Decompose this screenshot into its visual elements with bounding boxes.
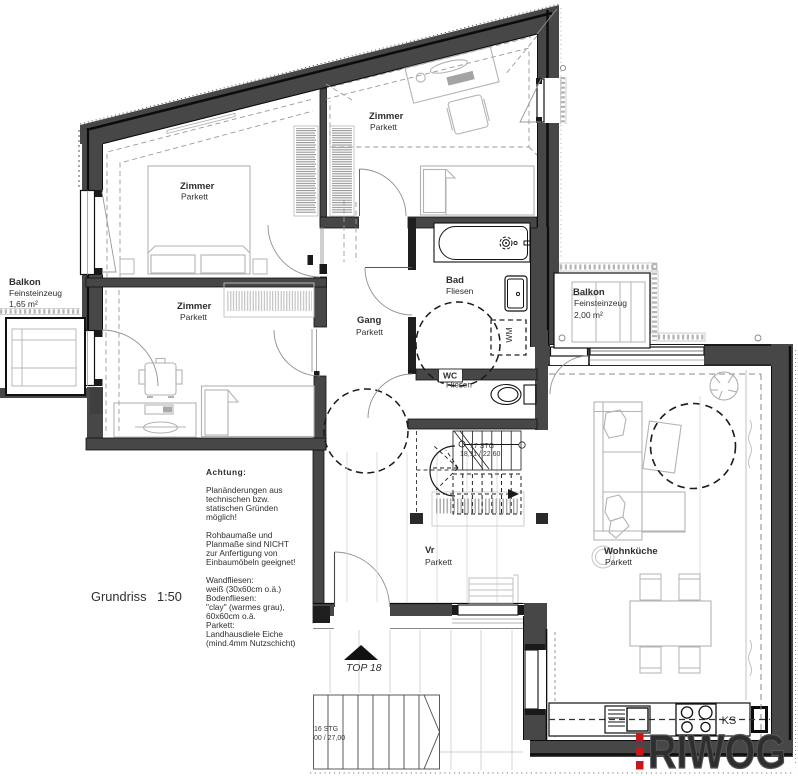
svg-text:Parkett: Parkett xyxy=(605,557,633,567)
svg-text:(mind.4mm Nutzschicht): (mind.4mm Nutzschicht) xyxy=(206,638,296,648)
svg-text:möglich!: möglich! xyxy=(206,512,237,522)
svg-text:Zimmer: Zimmer xyxy=(369,111,404,122)
svg-text:Fliesen: Fliesen xyxy=(446,286,474,296)
svg-text:2,00 m²: 2,00 m² xyxy=(574,310,603,320)
svg-text:Parkett: Parkett xyxy=(356,327,384,337)
svg-text:Vr: Vr xyxy=(425,545,435,556)
svg-text:Zimmer: Zimmer xyxy=(180,181,215,192)
svg-text:Zimmer: Zimmer xyxy=(177,301,212,312)
svg-text:Wohnküche: Wohnküche xyxy=(604,546,658,557)
svg-text:1:50: 1:50 xyxy=(157,589,182,604)
svg-text:Balkon: Balkon xyxy=(9,277,41,288)
svg-text:Feinsteinzeug: Feinsteinzeug xyxy=(9,288,62,298)
svg-text:Bad: Bad xyxy=(446,275,464,286)
svg-text:16 STG: 16 STG xyxy=(314,726,338,733)
svg-text:Achtung:: Achtung: xyxy=(206,467,246,477)
svg-text:Fliesen: Fliesen xyxy=(446,381,472,390)
svg-text:Parkett: Parkett xyxy=(370,122,398,132)
svg-text:Parkett: Parkett xyxy=(181,192,209,202)
svg-text:17 STG: 17 STG xyxy=(470,443,494,450)
svg-text:18,11 / 22,60: 18,11 / 22,60 xyxy=(460,451,500,458)
svg-text:Balkon: Balkon xyxy=(573,287,605,298)
svg-text:Einbaumöbeln geeignet!: Einbaumöbeln geeignet! xyxy=(206,557,296,567)
svg-text:Parkett: Parkett xyxy=(425,557,453,567)
svg-text:Parkett: Parkett xyxy=(180,312,208,322)
svg-text:WC: WC xyxy=(443,371,457,381)
svg-text:Gang: Gang xyxy=(357,315,381,326)
svg-text:Feinsteinzeug: Feinsteinzeug xyxy=(574,298,627,308)
svg-text:Grundriss: Grundriss xyxy=(91,589,146,604)
svg-text:TOP 18: TOP 18 xyxy=(346,662,382,674)
svg-text:1,65 m²: 1,65 m² xyxy=(9,299,38,309)
svg-text:00 / 27,00: 00 / 27,00 xyxy=(314,735,345,742)
svg-text:WM: WM xyxy=(504,327,514,342)
svg-text:RIWOG: RIWOG xyxy=(648,726,786,776)
